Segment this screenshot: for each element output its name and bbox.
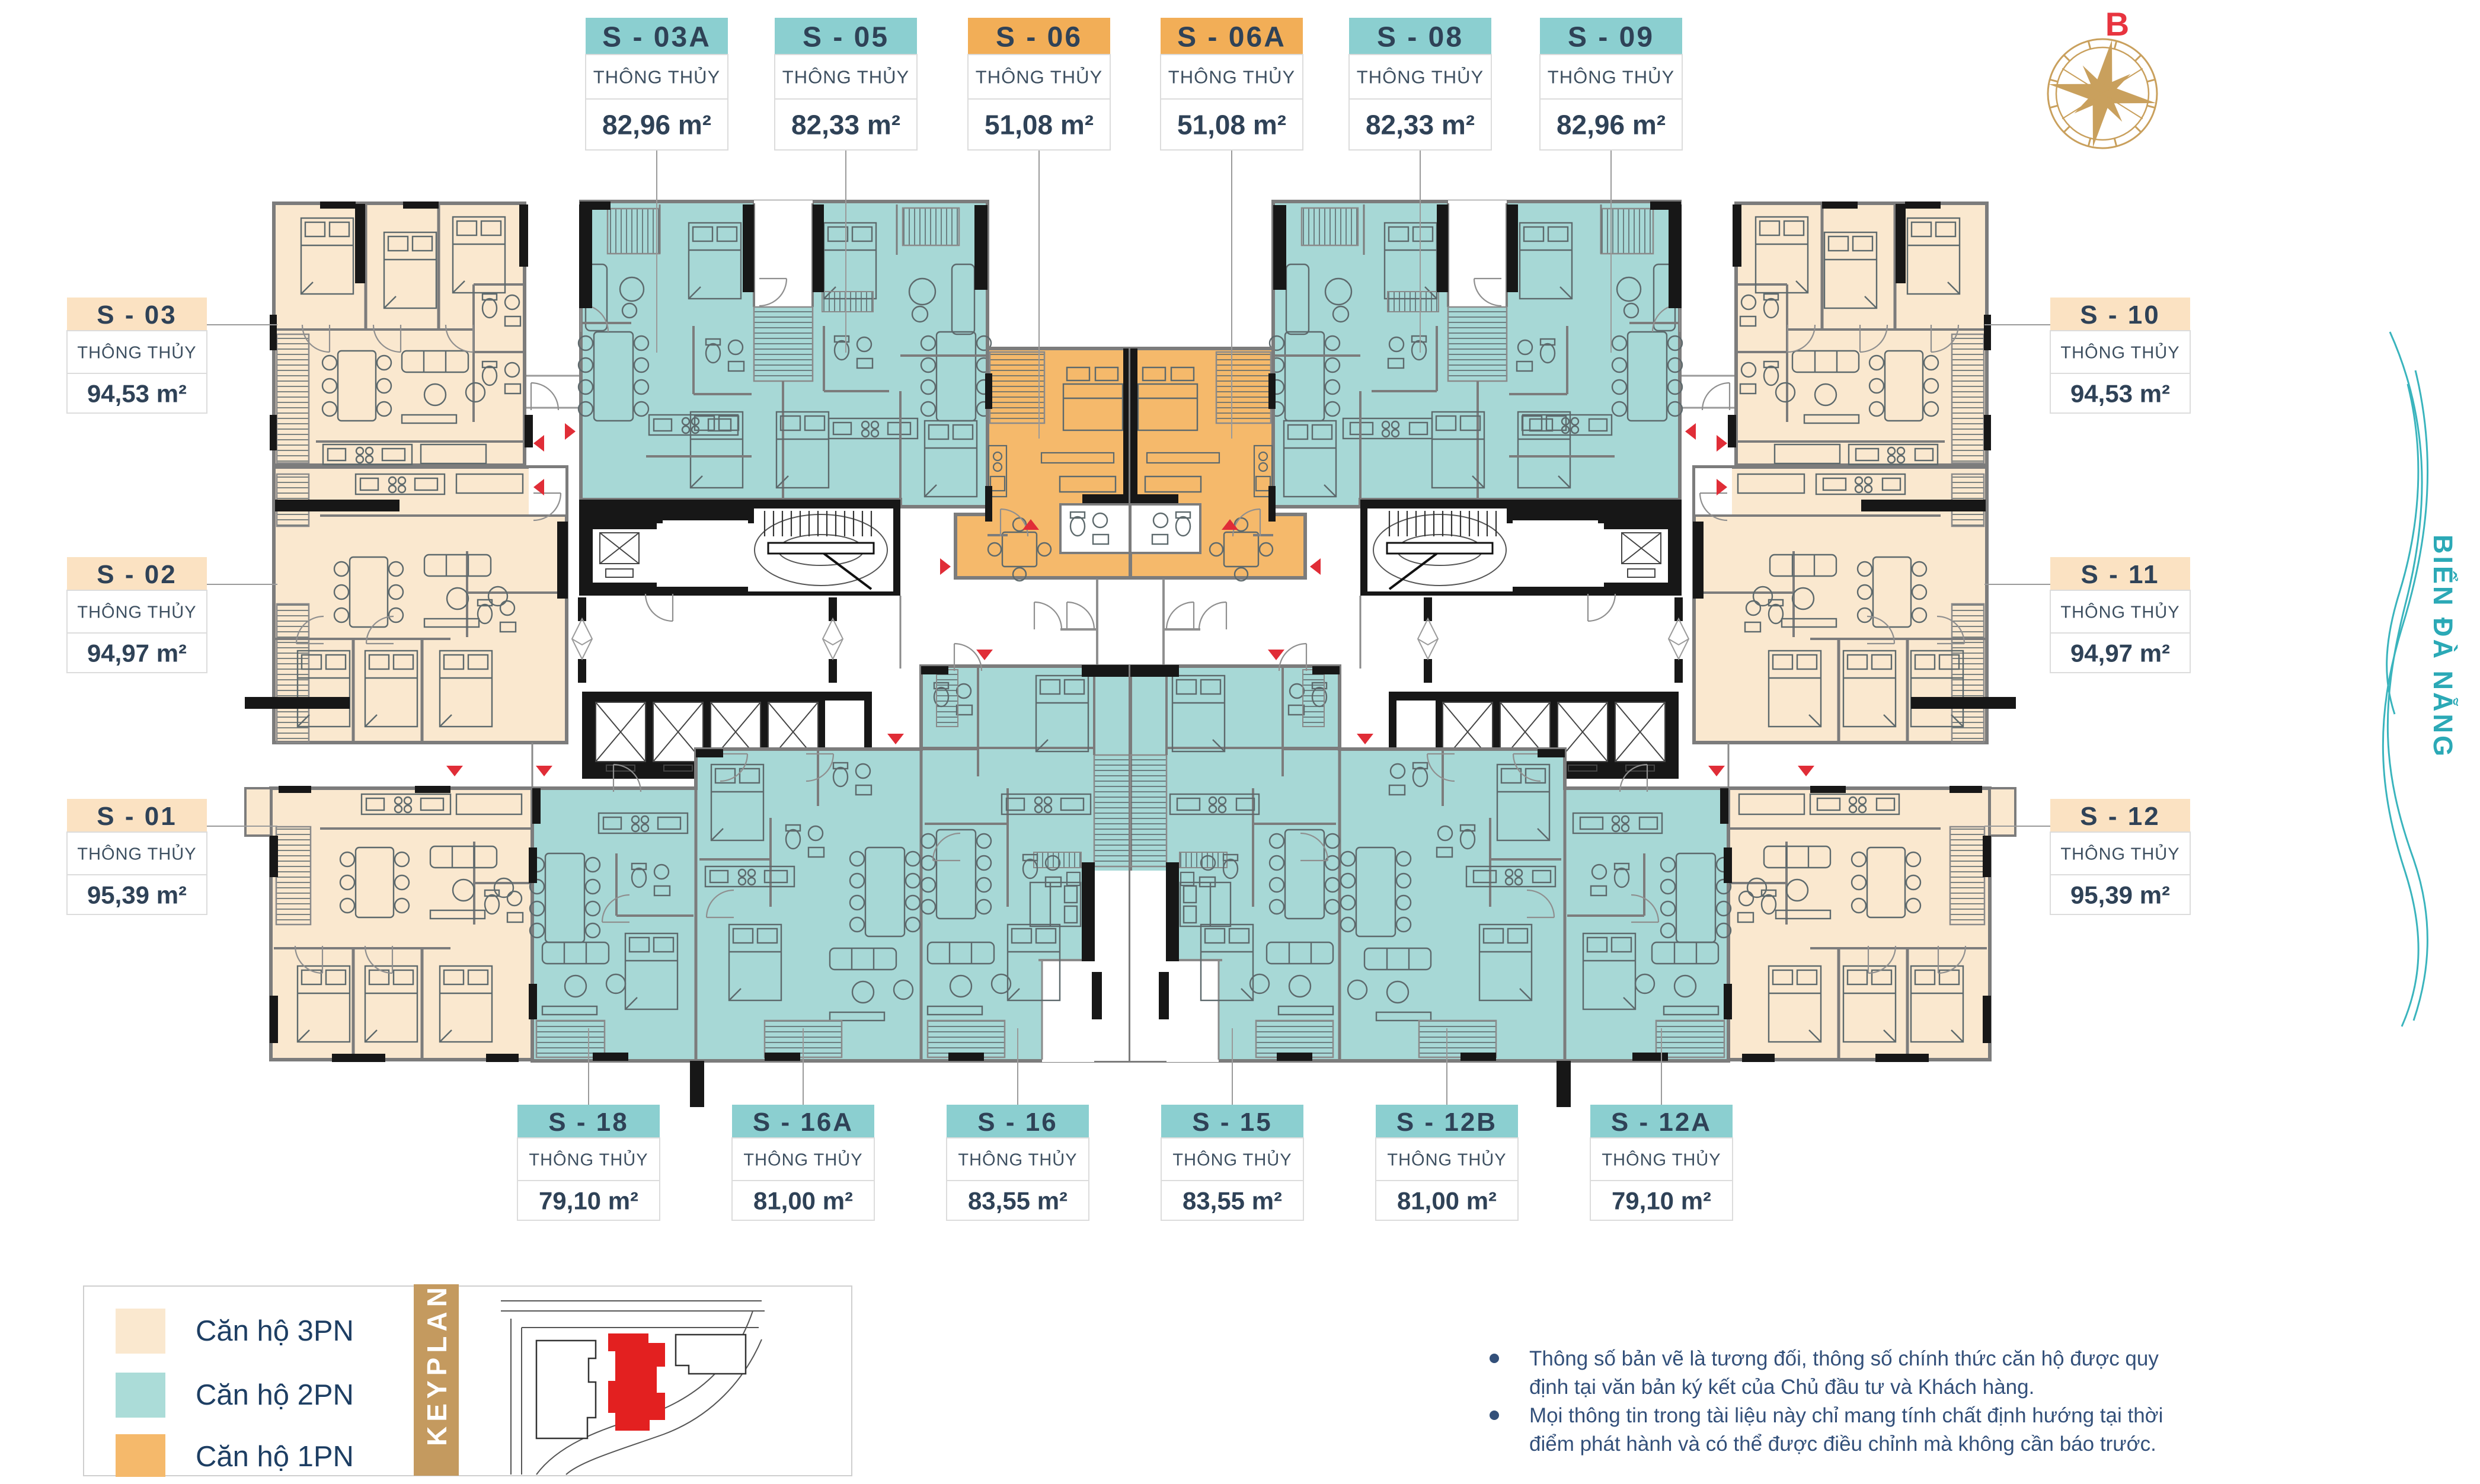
svg-text:THÔNG THỦY: THÔNG THỦY <box>1387 1149 1506 1169</box>
svg-text:S - 02: S - 02 <box>97 560 177 589</box>
svg-text:S - 11: S - 11 <box>2081 560 2160 589</box>
svg-text:THÔNG THỦY: THÔNG THỦY <box>1172 1149 1292 1169</box>
svg-text:KEYPLAN: KEYPLAN <box>421 1282 452 1446</box>
svg-text:THÔNG THỦY: THÔNG THỦY <box>77 602 196 622</box>
svg-text:THÔNG THỦY: THÔNG THỦY <box>593 66 720 88</box>
svg-text:THÔNG THỦY: THÔNG THỦY <box>958 1149 1077 1169</box>
svg-text:82,96 m²: 82,96 m² <box>1557 110 1666 140</box>
svg-text:95,39 m²: 95,39 m² <box>2070 881 2170 909</box>
svg-text:S - 15: S - 15 <box>1192 1108 1272 1137</box>
svg-text:THÔNG THỦY: THÔNG THỦY <box>743 1149 862 1169</box>
svg-text:81,00 m²: 81,00 m² <box>753 1187 853 1215</box>
svg-text:94,97 m²: 94,97 m² <box>2070 639 2170 667</box>
svg-text:Mọi thông tin trong tài liệu n: Mọi thông tin trong tài liệu này chỉ man… <box>1529 1404 2163 1427</box>
svg-text:Thông số bản vẽ là tương đối,: Thông số bản vẽ là tương đối, thông số c… <box>1529 1347 2159 1370</box>
svg-text:51,08 m²: 51,08 m² <box>1177 110 1286 140</box>
svg-text:94,53 m²: 94,53 m² <box>87 380 187 408</box>
svg-text:82,33 m²: 82,33 m² <box>791 110 900 140</box>
svg-text:THÔNG THỦY: THÔNG THỦY <box>976 66 1102 88</box>
svg-text:điểm phát hành và có thể được: điểm phát hành và có thể được điều chỉnh… <box>1529 1432 2156 1456</box>
svg-text:THÔNG THỦY: THÔNG THỦY <box>2060 602 2179 622</box>
svg-text:S - 12A: S - 12A <box>1611 1108 1712 1137</box>
svg-text:S - 12B: S - 12B <box>1396 1108 1497 1137</box>
svg-text:S - 08: S - 08 <box>1377 21 1463 53</box>
svg-text:S - 03: S - 03 <box>97 300 177 330</box>
svg-text:83,55 m²: 83,55 m² <box>968 1187 1068 1215</box>
svg-text:THÔNG THỦY: THÔNG THỦY <box>77 843 196 863</box>
svg-text:82,96 m²: 82,96 m² <box>602 110 711 140</box>
svg-text:S - 12: S - 12 <box>2080 802 2160 831</box>
svg-text:95,39 m²: 95,39 m² <box>87 881 187 909</box>
svg-text:S - 05: S - 05 <box>803 21 889 53</box>
svg-text:B: B <box>2105 5 2129 43</box>
svg-text:THÔNG THỦY: THÔNG THỦY <box>2060 342 2179 362</box>
svg-text:79,10 m²: 79,10 m² <box>1612 1187 1711 1215</box>
svg-text:THÔNG THỦY: THÔNG THỦY <box>1602 1149 1721 1169</box>
svg-text:S - 09: S - 09 <box>1568 21 1654 53</box>
svg-text:82,33 m²: 82,33 m² <box>1366 110 1475 140</box>
svg-text:81,00 m²: 81,00 m² <box>1397 1187 1497 1215</box>
svg-text:51,08 m²: 51,08 m² <box>985 110 1094 140</box>
svg-text:THÔNG THỦY: THÔNG THỦY <box>1168 66 1295 88</box>
svg-text:S - 18: S - 18 <box>548 1108 628 1137</box>
svg-text:Căn hộ 1PN: Căn hộ 1PN <box>196 1441 354 1473</box>
svg-text:94,97 m²: 94,97 m² <box>87 639 187 667</box>
svg-text:94,53 m²: 94,53 m² <box>2070 380 2170 408</box>
svg-text:83,55 m²: 83,55 m² <box>1183 1187 1282 1215</box>
svg-text:S - 06A: S - 06A <box>1177 21 1286 53</box>
svg-text:THÔNG THỦY: THÔNG THỦY <box>2060 843 2179 863</box>
svg-text:S - 03A: S - 03A <box>602 21 711 53</box>
svg-text:THÔNG THỦY: THÔNG THỦY <box>782 66 909 88</box>
svg-text:S - 16A: S - 16A <box>753 1108 854 1137</box>
svg-text:THÔNG THỦY: THÔNG THỦY <box>77 342 196 362</box>
svg-text:Căn hộ 3PN: Căn hộ 3PN <box>196 1315 354 1347</box>
svg-text:BIỂN ĐÀ NẴNG: BIỂN ĐÀ NẴNG <box>2428 535 2458 759</box>
svg-text:S - 16: S - 16 <box>977 1108 1057 1137</box>
svg-text:THÔNG THỦY: THÔNG THỦY <box>1357 66 1484 88</box>
svg-text:THÔNG THỦY: THÔNG THỦY <box>529 1149 648 1169</box>
svg-text:THÔNG THỦY: THÔNG THỦY <box>1548 66 1674 88</box>
svg-text:S - 10: S - 10 <box>2080 300 2160 330</box>
svg-text:79,10 m²: 79,10 m² <box>539 1187 638 1215</box>
svg-text:S - 06: S - 06 <box>996 21 1082 53</box>
svg-text:S - 01: S - 01 <box>97 802 177 831</box>
svg-text:Căn hộ 2PN: Căn hộ 2PN <box>196 1379 354 1411</box>
svg-text:định tại văn bản ký kết của Ch: định tại văn bản ký kết của Chủ đầu tư v… <box>1529 1376 2034 1399</box>
